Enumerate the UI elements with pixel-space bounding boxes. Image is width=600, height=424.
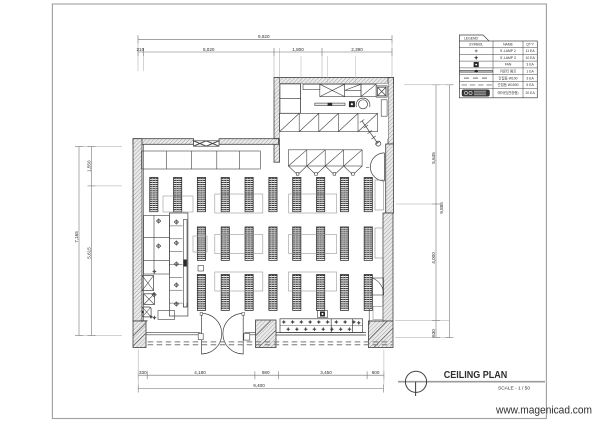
svg-text:3,450: 3,450 [320,370,332,375]
svg-text:SYMBOL: SYMBOL [469,43,483,47]
svg-text:3 EA: 3 EA [526,63,534,67]
svg-text:FAN: FAN [505,63,512,67]
svg-text:9,885: 9,885 [439,202,444,214]
svg-text:630: 630 [431,329,436,337]
svg-text:카운터 램프: 카운터 램프 [500,69,517,74]
svg-text:에어컨(천장형): 에어컨(천장형) [498,90,519,95]
svg-text:11 EA: 11 EA [526,49,536,53]
svg-text:10 EA: 10 EA [525,56,535,60]
svg-text:5,645: 5,645 [431,152,436,164]
svg-text:LEGEND: LEGEND [464,36,478,40]
svg-text:NAME: NAME [503,43,514,47]
svg-text:4,000: 4,000 [431,252,436,264]
svg-text:5,615: 5,615 [87,247,92,259]
svg-text:2,390: 2,390 [351,47,363,52]
svg-text:5'-LAMP 3: 5'-LAMP 3 [500,56,516,60]
svg-text:210: 210 [136,47,144,52]
svg-text:5'-LAMP 2: 5'-LAMP 2 [500,49,516,53]
svg-text:9,820: 9,820 [258,34,270,39]
svg-text:20 EA: 20 EA [525,91,535,95]
svg-text:CEILING PLAN: CEILING PLAN [444,370,508,381]
svg-text:600: 600 [372,370,380,375]
svg-text:980: 980 [262,370,270,375]
svg-text:5,020: 5,020 [203,47,215,52]
svg-text:1,800: 1,800 [292,47,304,52]
svg-text:330: 330 [139,370,147,375]
svg-text:5 EA: 5 EA [526,83,534,87]
svg-text:9,400: 9,400 [253,383,265,388]
svg-text:4,180: 4,180 [194,370,206,375]
svg-text:1 EA: 1 EA [526,70,534,74]
svg-text:SCALE - 1 / 50: SCALE - 1 / 50 [498,385,530,391]
svg-text:3 EA: 3 EA [526,76,534,80]
svg-text:www.magenicad.com: www.magenicad.com [495,405,592,417]
svg-text:1,550: 1,550 [87,160,92,172]
svg-text:간접등 W100: 간접등 W100 [498,75,517,80]
svg-text:QT'Y: QT'Y [526,43,534,47]
svg-text:7,165: 7,165 [74,231,79,243]
svg-text:간접등 W1500: 간접등 W1500 [497,82,518,87]
